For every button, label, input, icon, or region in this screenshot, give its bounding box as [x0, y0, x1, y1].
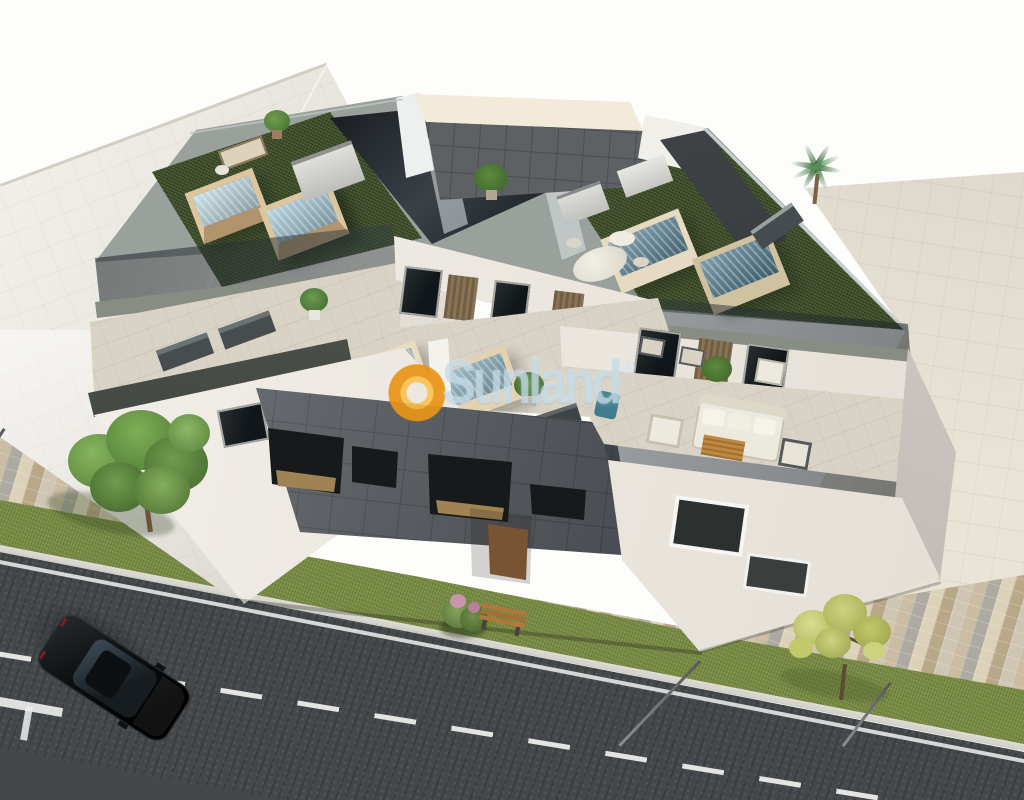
stone-stool [609, 231, 635, 246]
sliding-door [399, 266, 443, 318]
palm-plant [788, 142, 844, 212]
plant-pot [486, 190, 497, 200]
outdoor-armchair [778, 438, 812, 471]
car-mirror [117, 720, 128, 730]
side-table [215, 165, 229, 175]
potted-plant [702, 356, 732, 382]
outdoor-armchair [754, 358, 786, 386]
render-scene: Sunland ® [0, 0, 1024, 800]
car-taillight [39, 650, 46, 659]
potted-plant [514, 372, 544, 398]
window [673, 500, 744, 553]
potted-plant [474, 164, 508, 192]
potted-plant [264, 110, 290, 132]
car-mirror [155, 662, 166, 672]
yellow-tree [775, 588, 905, 718]
plant-pot [309, 310, 320, 320]
green-tree [60, 400, 220, 550]
car-taillight [60, 618, 67, 627]
stone-stool [566, 238, 582, 248]
potted-plant [300, 288, 328, 312]
outdoor-chair [639, 336, 666, 358]
black-car [28, 608, 208, 753]
outdoor-chair [679, 346, 706, 368]
window-shutter [443, 274, 478, 321]
car-body [33, 610, 195, 746]
outdoor-armchair [646, 413, 685, 448]
stone-stool [633, 257, 649, 267]
plant-pot [272, 130, 282, 139]
plant-pot [524, 396, 536, 406]
